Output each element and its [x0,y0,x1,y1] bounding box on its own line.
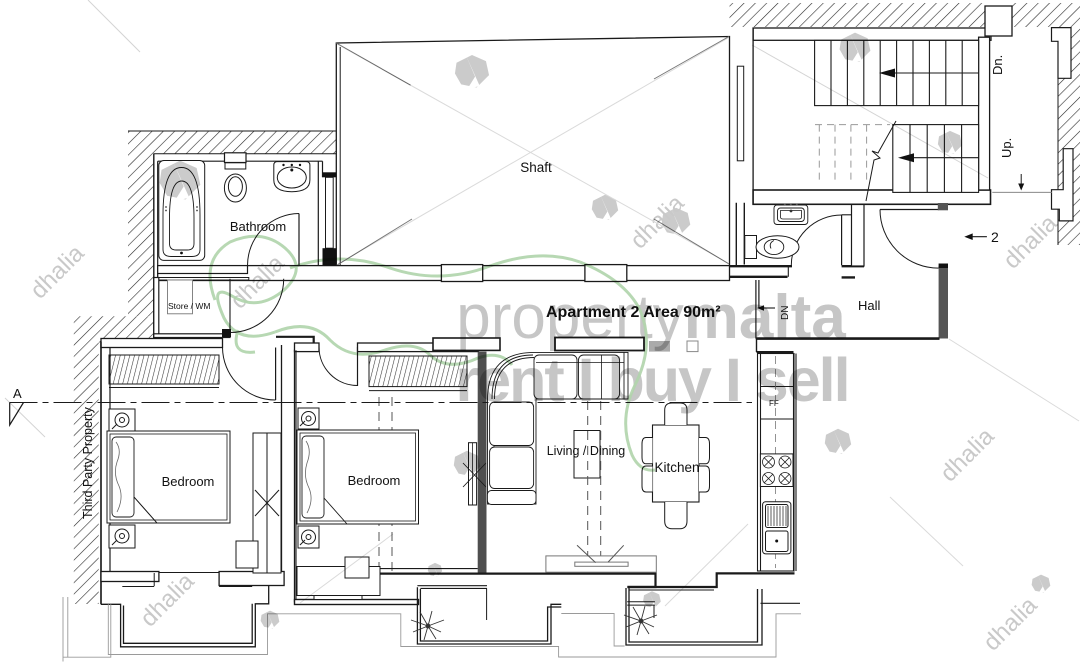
svg-text:Living / Dining: Living / Dining [547,444,626,458]
svg-text:Kitchen: Kitchen [654,460,699,475]
svg-text:Third Party Property: Third Party Property [81,406,95,519]
svg-text:Hall: Hall [858,298,881,313]
svg-text:rent I buy I sell: rent I buy I sell [455,346,848,414]
svg-text:2: 2 [991,229,999,245]
svg-text:Bedroom: Bedroom [162,474,215,489]
svg-text:Dn.: Dn. [990,55,1005,75]
svg-text:A: A [13,386,22,401]
svg-text:propertymalta: propertymalta [456,283,846,352]
svg-text:Bedroom: Bedroom [348,473,401,488]
svg-text:Store / WM: Store / WM [168,301,211,311]
svg-text:Up.: Up. [999,138,1014,158]
svg-text:Bathroom: Bathroom [230,219,286,234]
